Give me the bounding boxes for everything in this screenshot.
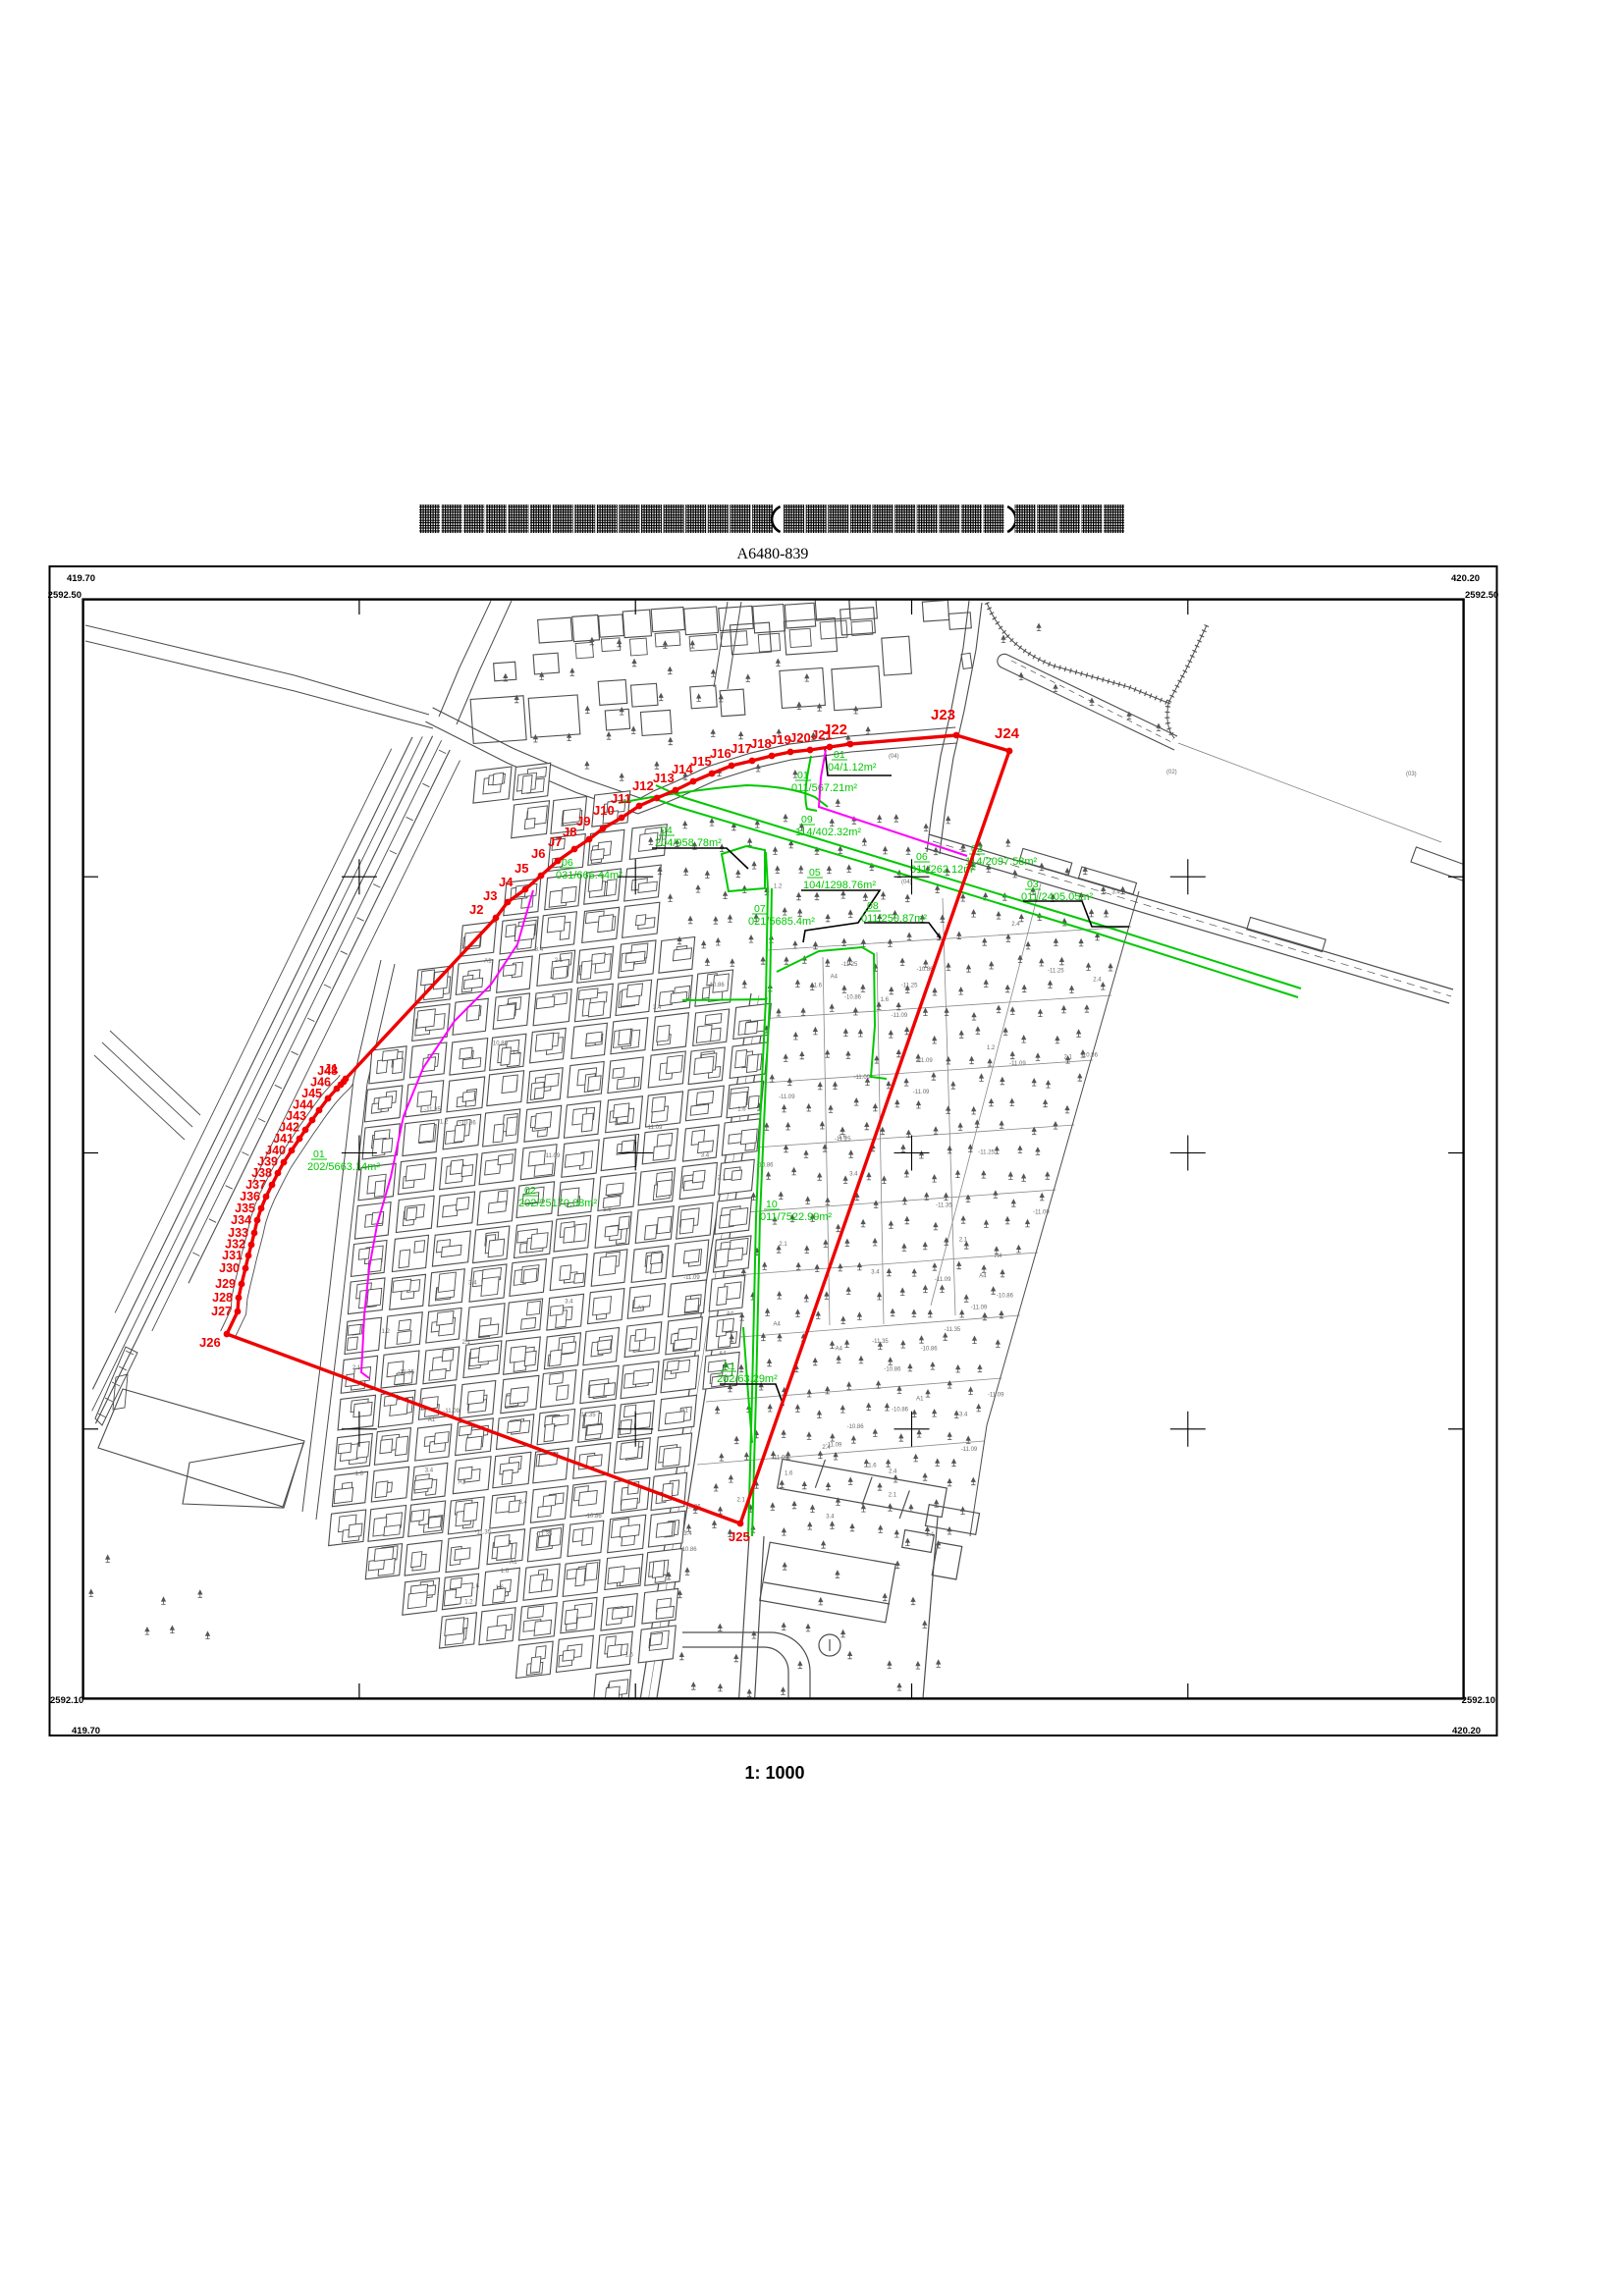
svg-text:1.6: 1.6 <box>471 1584 480 1590</box>
svg-text:2.1: 2.1 <box>737 1498 746 1504</box>
svg-text:01: 01 <box>797 770 809 781</box>
svg-text:J36: J36 <box>240 1190 260 1203</box>
svg-text:1.6: 1.6 <box>625 1652 634 1658</box>
svg-text:3.4: 3.4 <box>701 1152 710 1158</box>
svg-text:011/567.21m²: 011/567.21m² <box>791 782 857 794</box>
svg-text:J33: J33 <box>228 1226 248 1240</box>
svg-text:-10.86: -10.86 <box>892 1407 909 1413</box>
svg-text:1.6: 1.6 <box>603 1207 612 1213</box>
svg-text:3.4: 3.4 <box>565 1299 573 1305</box>
svg-text:J26: J26 <box>199 1335 221 1350</box>
svg-text:J11: J11 <box>611 791 631 806</box>
svg-text:A4: A4 <box>774 1322 782 1328</box>
svg-text:01: 01 <box>313 1148 325 1160</box>
svg-text:-10.86: -10.86 <box>460 1121 477 1127</box>
svg-text:J9: J9 <box>576 814 590 828</box>
svg-text:1: 1000: 1: 1000 <box>744 1763 804 1783</box>
svg-text:J23: J23 <box>931 707 955 723</box>
svg-text:-11.35: -11.35 <box>424 1107 441 1113</box>
svg-text:3.4: 3.4 <box>959 1413 968 1418</box>
svg-text:021/5685.4m²: 021/5685.4m² <box>748 916 815 928</box>
svg-text:1.6: 1.6 <box>355 1471 364 1477</box>
svg-text:J12: J12 <box>632 778 654 793</box>
svg-text:-10.86: -10.86 <box>847 1424 865 1430</box>
svg-text:-11.09: -11.09 <box>1033 1210 1050 1216</box>
svg-text:A6480-839: A6480-839 <box>737 546 809 562</box>
svg-text:A1: A1 <box>428 1417 436 1423</box>
svg-text:-11.25: -11.25 <box>978 1150 995 1156</box>
svg-text:1.6: 1.6 <box>513 1050 521 1056</box>
svg-text:-10.86: -10.86 <box>708 983 726 988</box>
svg-text:J35: J35 <box>235 1201 255 1215</box>
svg-text:-10.86: -10.86 <box>844 995 862 1001</box>
svg-text:04: 04 <box>661 825 673 836</box>
svg-text:J16: J16 <box>710 746 731 761</box>
svg-text:3.4: 3.4 <box>683 1531 692 1537</box>
svg-text:1.6: 1.6 <box>839 1135 847 1141</box>
svg-text:J34: J34 <box>231 1213 251 1227</box>
svg-text:02: 02 <box>524 1185 536 1197</box>
svg-text:J27: J27 <box>211 1305 232 1318</box>
svg-text:07: 07 <box>754 903 766 915</box>
svg-text:3.4: 3.4 <box>468 1281 477 1287</box>
svg-text:2.1: 2.1 <box>1064 1055 1073 1061</box>
svg-text:A1: A1 <box>723 1361 735 1372</box>
svg-text:J3: J3 <box>483 888 497 903</box>
svg-text:-11.09: -11.09 <box>1009 1061 1026 1067</box>
svg-text:(04): (04) <box>901 880 912 885</box>
svg-text:2592.10: 2592.10 <box>50 1695 83 1706</box>
svg-text:-11.35: -11.35 <box>936 1202 952 1208</box>
svg-text:2592.10: 2592.10 <box>1462 1695 1495 1706</box>
svg-text:1.2: 1.2 <box>987 1045 996 1051</box>
svg-text:(03): (03) <box>1406 772 1417 777</box>
svg-text:J19: J19 <box>770 732 791 747</box>
svg-text:-11.09: -11.09 <box>935 1277 951 1283</box>
svg-text:(04): (04) <box>889 754 899 760</box>
svg-text:2.1: 2.1 <box>352 1365 361 1371</box>
svg-text:3.4: 3.4 <box>849 1171 858 1177</box>
svg-text:J30: J30 <box>219 1261 240 1275</box>
svg-text:2592.50: 2592.50 <box>1465 590 1498 601</box>
svg-text:420.20: 420.20 <box>1452 1726 1481 1736</box>
svg-text:419.70: 419.70 <box>67 573 95 584</box>
svg-text:J17: J17 <box>731 741 752 756</box>
svg-text:2.1: 2.1 <box>959 1238 968 1244</box>
svg-text:-11.35: -11.35 <box>398 1370 414 1376</box>
svg-text:06: 06 <box>916 851 928 863</box>
svg-text:J4: J4 <box>499 875 514 889</box>
svg-text:3.4: 3.4 <box>871 1270 880 1276</box>
svg-text:A1: A1 <box>916 1396 924 1402</box>
svg-text:3.4: 3.4 <box>653 1005 662 1011</box>
svg-text:1.2: 1.2 <box>382 1329 391 1335</box>
svg-text:J8: J8 <box>563 825 576 839</box>
svg-text:1.6: 1.6 <box>501 1569 510 1575</box>
svg-text:-11.09: -11.09 <box>892 1013 908 1019</box>
svg-text:-11.09: -11.09 <box>646 1125 663 1131</box>
svg-text:A1: A1 <box>681 1409 689 1415</box>
svg-text:1.6: 1.6 <box>737 1106 746 1112</box>
svg-text:A1: A1 <box>510 1560 517 1566</box>
svg-text:J5: J5 <box>514 861 528 876</box>
svg-text:1.2: 1.2 <box>440 1120 449 1126</box>
svg-text:1.2: 1.2 <box>774 883 783 889</box>
svg-text:202/25170.08m²: 202/25170.08m² <box>518 1198 597 1209</box>
svg-text:-11.35: -11.35 <box>872 1339 889 1345</box>
svg-text:2592.50: 2592.50 <box>48 590 81 601</box>
svg-text:2.1: 2.1 <box>779 1242 787 1248</box>
svg-text:-11.25: -11.25 <box>1048 968 1064 974</box>
svg-text:03: 03 <box>1027 879 1039 890</box>
svg-text:A1: A1 <box>637 1306 645 1311</box>
svg-text:-11.09: -11.09 <box>961 1447 978 1453</box>
svg-text:2.1: 2.1 <box>926 1532 935 1538</box>
svg-text:-11.25: -11.25 <box>841 962 858 968</box>
svg-text:1.6: 1.6 <box>814 983 823 988</box>
svg-text:10: 10 <box>766 1199 778 1210</box>
svg-text:A4: A4 <box>836 1347 843 1353</box>
svg-text:A4: A4 <box>831 975 839 981</box>
svg-text:J25: J25 <box>729 1529 750 1544</box>
svg-text:J6: J6 <box>531 846 545 861</box>
svg-text:04/1.12m²: 04/1.12m² <box>828 762 877 774</box>
svg-text:-10.86: -10.86 <box>921 1347 939 1353</box>
svg-text:-11.25: -11.25 <box>901 984 918 989</box>
svg-text:1.6: 1.6 <box>496 1585 505 1591</box>
svg-text:-11.09: -11.09 <box>988 1392 1004 1398</box>
svg-text:J18: J18 <box>750 736 772 751</box>
svg-text:1.6: 1.6 <box>785 1471 793 1477</box>
svg-text:J29: J29 <box>215 1277 236 1291</box>
svg-text:-11.35: -11.35 <box>945 1327 961 1333</box>
svg-text:01: 01 <box>834 749 845 761</box>
svg-text:3.4: 3.4 <box>535 947 544 953</box>
svg-text:-11.09: -11.09 <box>854 1075 871 1081</box>
svg-text:1.2: 1.2 <box>464 1600 473 1606</box>
svg-text:A1: A1 <box>459 1480 466 1486</box>
svg-text:J7: J7 <box>548 834 562 849</box>
svg-text:-11.09: -11.09 <box>913 1090 930 1095</box>
svg-text:-10.86: -10.86 <box>585 1514 603 1520</box>
svg-text:J48: J48 <box>317 1064 338 1078</box>
svg-text:-10.86: -10.86 <box>1081 1052 1099 1058</box>
svg-text:J28: J28 <box>212 1291 233 1305</box>
svg-text:J20: J20 <box>789 730 811 745</box>
svg-text:J15: J15 <box>690 754 712 769</box>
svg-text:-11.09: -11.09 <box>683 1275 700 1281</box>
svg-text:J40: J40 <box>265 1144 286 1157</box>
svg-text:09: 09 <box>801 814 813 826</box>
svg-text:08: 08 <box>867 900 879 912</box>
svg-text:2.4: 2.4 <box>1093 978 1102 984</box>
svg-text:J22: J22 <box>823 721 847 738</box>
svg-text:A4: A4 <box>979 1273 987 1279</box>
svg-text:202/5663.14m²: 202/5663.14m² <box>307 1161 380 1173</box>
svg-text:1.6: 1.6 <box>868 1463 877 1468</box>
svg-text:-11.09: -11.09 <box>916 1058 933 1064</box>
svg-text:-11.09: -11.09 <box>779 1095 795 1100</box>
svg-text:A1: A1 <box>484 959 492 965</box>
svg-text:3.4: 3.4 <box>1111 890 1120 896</box>
svg-text:-10.86: -10.86 <box>680 1547 698 1553</box>
svg-text:2.1: 2.1 <box>889 1492 897 1498</box>
svg-text:-11.35: -11.35 <box>475 1529 492 1535</box>
svg-text:A4: A4 <box>727 1311 734 1317</box>
svg-text:A4: A4 <box>719 1352 727 1358</box>
svg-text:J24: J24 <box>995 725 1020 742</box>
svg-text:2.4: 2.4 <box>822 1445 831 1451</box>
svg-text:419.70: 419.70 <box>72 1726 100 1736</box>
svg-text:114/402.32m²: 114/402.32m² <box>795 827 861 838</box>
svg-text:2.4: 2.4 <box>889 1469 897 1475</box>
svg-text:420.20: 420.20 <box>1451 573 1480 584</box>
svg-text:-11.09: -11.09 <box>544 1153 561 1159</box>
svg-text:3.4: 3.4 <box>425 1468 434 1474</box>
svg-text:-10.86: -10.86 <box>997 1293 1014 1299</box>
svg-text:1.6: 1.6 <box>881 997 890 1003</box>
svg-text:-10.86: -10.86 <box>491 1041 509 1047</box>
svg-text:2.4: 2.4 <box>1011 922 1020 928</box>
svg-text:-11.35: -11.35 <box>579 1413 596 1418</box>
svg-text:3.4: 3.4 <box>519 1500 528 1506</box>
svg-text:J2: J2 <box>469 902 483 917</box>
svg-text:-11.09: -11.09 <box>772 1456 788 1462</box>
svg-text:J37: J37 <box>245 1178 266 1192</box>
svg-text:3.4: 3.4 <box>826 1514 835 1520</box>
svg-text:011/7522.99m²: 011/7522.99m² <box>760 1211 833 1223</box>
svg-text:2.1: 2.1 <box>555 958 564 964</box>
svg-text:031/666.44m²: 031/666.44m² <box>556 870 623 881</box>
svg-text:05: 05 <box>809 867 821 879</box>
svg-text:-11.35: -11.35 <box>536 1532 553 1538</box>
svg-text:-10.86: -10.86 <box>884 1367 901 1373</box>
svg-text:-11.09: -11.09 <box>971 1305 988 1310</box>
svg-text:2.1: 2.1 <box>718 1176 727 1182</box>
svg-text:A4: A4 <box>995 1254 1002 1259</box>
svg-text:2.1: 2.1 <box>462 1340 471 1346</box>
svg-text:(02): (02) <box>1166 770 1177 775</box>
